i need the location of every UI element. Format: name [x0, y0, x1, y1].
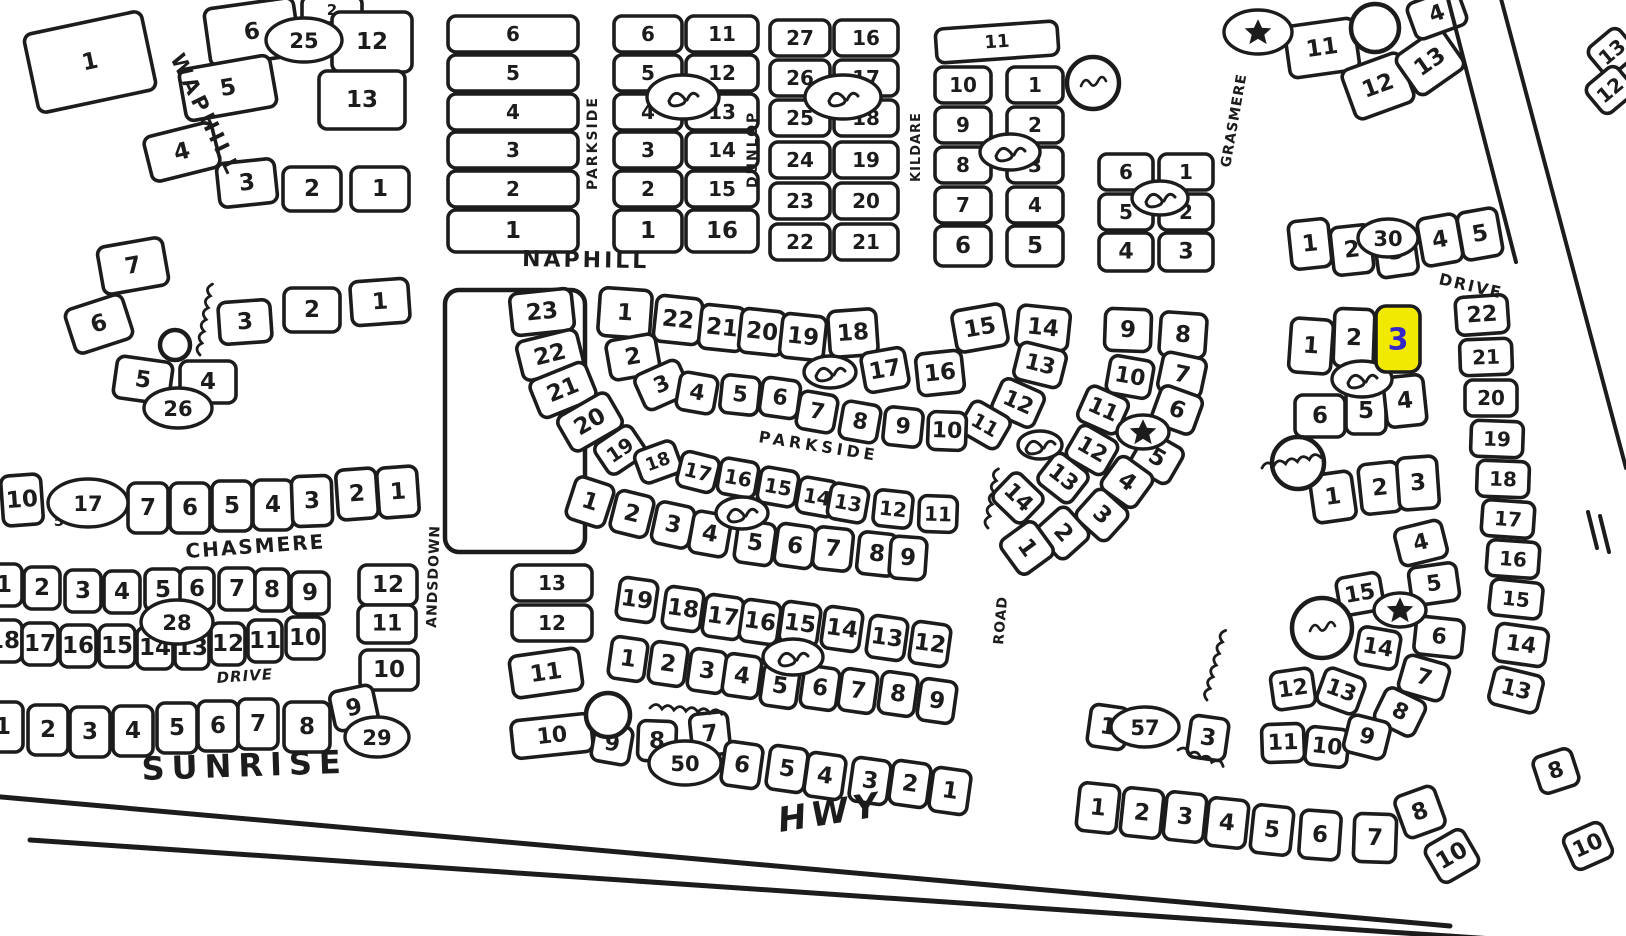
lot: 2: [888, 760, 932, 809]
lot: 13: [865, 615, 908, 662]
lot-number: 1: [371, 288, 389, 315]
lot-number: 16: [1498, 546, 1527, 572]
lot: 16: [716, 457, 760, 499]
lot-number: 4: [265, 492, 281, 518]
lot: 2: [28, 705, 68, 755]
lot: 3: [1159, 233, 1213, 271]
block-number: 30: [1373, 227, 1402, 251]
lot-number: 18: [836, 319, 870, 347]
lot: 4: [448, 94, 578, 130]
lot: 20: [1465, 380, 1517, 416]
lot-number: 5: [1027, 233, 1043, 259]
lot-number: 4: [506, 100, 520, 124]
lot: 6: [773, 523, 816, 570]
lot: 5: [1250, 804, 1295, 856]
lot-number: 16: [923, 358, 958, 387]
lot-number: 9: [956, 113, 970, 137]
lot-number: 15: [782, 609, 817, 639]
lot: 17: [675, 450, 721, 494]
lot: 16: [834, 20, 898, 56]
lot-number: 10: [931, 418, 962, 444]
lot: 12: [211, 623, 245, 665]
lot: 11: [935, 21, 1059, 63]
lot-number: 5: [169, 715, 185, 741]
block-number-marker: [1117, 415, 1169, 449]
lot-number: 15: [1501, 586, 1531, 613]
lot: 4: [1099, 233, 1153, 271]
lot: 19: [779, 313, 827, 361]
lot: 19: [1470, 420, 1523, 458]
lot-number: 2: [304, 297, 320, 323]
lot-number: 2: [1133, 799, 1152, 827]
street-label: NAPHILL: [522, 247, 650, 274]
block-number-marker: [1224, 10, 1292, 54]
lot: 6: [935, 226, 991, 266]
lot: 16: [738, 599, 781, 646]
lot: 7: [96, 237, 169, 296]
lot-number: 4: [200, 369, 216, 395]
lot: 18: [0, 620, 22, 662]
lot: 7: [935, 187, 991, 223]
lot: 10: [935, 67, 991, 103]
highlighted-lot: 3: [1376, 306, 1420, 372]
lot-number: 14: [708, 138, 736, 162]
lot: 5: [719, 374, 761, 416]
lot: 13: [512, 565, 592, 601]
lot: 2: [24, 567, 60, 609]
lot-number: 6: [641, 22, 655, 46]
lot: 6: [614, 16, 682, 52]
lot-number: 7: [250, 711, 266, 737]
lot-number: 4: [1396, 387, 1415, 415]
lot: 17: [1481, 499, 1535, 539]
block-number-marker: [1018, 431, 1062, 459]
lot-number: 5: [1119, 200, 1133, 224]
lot-number: 9: [894, 414, 912, 440]
lot: 15: [1488, 578, 1543, 619]
lot: 9: [1104, 308, 1151, 352]
lot: 22: [653, 295, 704, 346]
block-number-marker: [980, 134, 1040, 170]
block-number-marker: [647, 75, 719, 119]
lot: 1: [0, 564, 22, 606]
lot-number: 1: [1028, 73, 1042, 97]
lot-number: 9: [302, 580, 318, 606]
lot: 9: [889, 536, 928, 580]
lot: 1: [350, 278, 411, 326]
block-number: 29: [362, 726, 391, 750]
lot: 11: [918, 495, 957, 532]
lot-number: 16: [722, 464, 754, 492]
lot-number: 23: [525, 297, 560, 326]
lot-number: 10: [1113, 362, 1148, 392]
lot: 7: [795, 390, 839, 434]
lot-number: 15: [101, 633, 133, 659]
lot-number: 7: [956, 193, 970, 217]
lot: 5: [157, 703, 197, 753]
lot: 24: [770, 142, 830, 178]
lot: 1: [1007, 67, 1063, 103]
cul-de-sac-bulb: [1292, 598, 1352, 658]
lot: 18: [827, 308, 878, 357]
lot-number: 13: [538, 571, 566, 595]
lot: 7: [812, 526, 854, 572]
lot-number: 11: [1304, 33, 1339, 63]
lot-number: 1: [1089, 794, 1108, 822]
lot-number: 19: [852, 148, 880, 172]
lot: 2: [448, 171, 578, 207]
lot: 1: [928, 767, 972, 816]
lot-number: 6: [1119, 160, 1133, 184]
lot-number: 3: [304, 488, 321, 515]
lot: 21: [834, 224, 898, 260]
street-label: PARKSIDE: [585, 96, 601, 190]
lot-number: 3: [641, 138, 655, 162]
lot-number: 16: [62, 633, 94, 659]
lot: 3: [1186, 715, 1229, 762]
lot: 1: [376, 466, 419, 519]
lot: 12: [359, 565, 417, 605]
lot: 3: [218, 299, 273, 345]
lot-number: 12: [1276, 674, 1310, 703]
lot: 6: [720, 741, 764, 790]
lot: 3: [291, 475, 333, 526]
lot-number: 3: [236, 308, 254, 335]
lot-number: 19: [1483, 427, 1512, 452]
lot-number: 21: [852, 230, 880, 254]
lot: 9: [916, 678, 957, 725]
lot-number: 5: [1263, 816, 1282, 844]
lot: 6: [170, 483, 210, 533]
lot-number: 12: [708, 61, 736, 85]
lot-number: 17: [705, 602, 740, 632]
lot-number: 4: [114, 579, 130, 605]
lot: 14: [820, 606, 863, 653]
lot-number: 10: [949, 73, 977, 97]
lot: 4: [104, 571, 140, 613]
lot-number: 8: [956, 153, 970, 177]
lot-number: 3: [1409, 469, 1427, 496]
block-number-marker: 50: [649, 741, 721, 785]
block-number-marker: [804, 356, 856, 388]
lot-number: 19: [619, 585, 654, 615]
street-label: DUNLOP: [745, 111, 761, 188]
lot: 6: [1295, 395, 1345, 437]
lot-number: 2: [304, 176, 320, 202]
lot: 12: [332, 12, 412, 72]
lot-number: 3: [506, 138, 520, 162]
block-number-marker: [763, 639, 823, 675]
block-number-marker: [1132, 181, 1188, 215]
lot-number: 11: [249, 628, 281, 654]
lot: 19: [834, 142, 898, 178]
lot-number: 9: [899, 544, 917, 571]
lot: 7: [1353, 813, 1397, 862]
lot: 15: [951, 303, 1010, 353]
lot: 10: [360, 650, 418, 690]
lot-number: 2: [1346, 325, 1363, 352]
lot: 11: [248, 620, 282, 662]
lot-number: 17: [867, 354, 903, 385]
lot-number: 13: [346, 87, 378, 113]
block-number: 50: [670, 752, 699, 776]
lot-number: 4: [1028, 193, 1042, 217]
lot: 11: [508, 647, 583, 698]
lot-number: 7: [824, 535, 843, 563]
lot: 3: [1163, 791, 1208, 843]
lot: 7: [837, 668, 878, 715]
block-number-marker: 29: [345, 717, 409, 757]
lot-number: 1: [0, 572, 12, 598]
lot-number: 15: [708, 177, 736, 201]
block-number: 25: [289, 29, 318, 53]
lot: 10: [927, 411, 966, 450]
lot-number: 23: [786, 189, 814, 213]
lot-number: 27: [786, 26, 814, 50]
lot: 12: [908, 621, 951, 668]
lot: 3: [614, 132, 682, 168]
lot-number: 22: [786, 230, 814, 254]
lot-number: 19: [786, 322, 821, 351]
lot: 2: [614, 171, 682, 207]
plat-map: 2161251343217654321654321611512413314215…: [0, 0, 1626, 936]
lot-number: 20: [745, 317, 780, 346]
lot: 4: [1205, 797, 1250, 849]
block-number-marker: 25: [266, 18, 342, 62]
lot-number: 1: [640, 218, 656, 244]
block-number-marker: [805, 75, 881, 119]
lot: 5: [1456, 207, 1504, 261]
lot: 17: [22, 623, 58, 665]
lot-number: 3: [82, 719, 98, 745]
cul-de-sac-bulb: [1067, 57, 1119, 109]
lot: 7: [128, 483, 168, 533]
lot-number: 12: [372, 572, 404, 598]
cul-de-sac-bulb: [1351, 4, 1399, 52]
lot-number: 2: [1028, 113, 1042, 137]
lot: 9: [882, 406, 924, 448]
lot-number: 6: [210, 713, 226, 739]
lot-number: 2: [641, 177, 655, 201]
lot-number: 21: [1472, 345, 1501, 370]
lot-number: 16: [742, 607, 777, 637]
lot-number: 10: [535, 722, 568, 750]
lot: 4: [113, 706, 153, 756]
block-number: 17: [73, 492, 102, 516]
lot: 6: [448, 16, 578, 52]
lot: 4: [721, 653, 762, 700]
lot: 2: [608, 489, 655, 539]
lot: 5: [212, 481, 252, 531]
lot-number: 1: [372, 176, 388, 202]
street-label: KILDARE: [909, 112, 924, 182]
lot-number: 1: [1179, 160, 1193, 184]
lot-number: 1: [389, 478, 407, 505]
lot: 2: [284, 288, 340, 332]
block-number: 26: [163, 397, 192, 421]
lot: 5: [765, 745, 809, 794]
lot-number: 11: [528, 658, 563, 688]
lot: 16: [686, 210, 758, 252]
lot: 20: [834, 183, 898, 219]
lot-number: 17: [1493, 506, 1522, 532]
lot: 7: [238, 699, 278, 749]
lot-number: 4: [125, 718, 141, 744]
map-canvas: 2161251343217654321654321611512413314215…: [0, 0, 1626, 936]
lot-number: 2: [1371, 474, 1390, 502]
lot: 5: [1007, 226, 1063, 266]
street-label: SUNRISE: [141, 743, 348, 788]
lot-number: 1: [616, 299, 634, 326]
lot-number: 1: [1302, 332, 1320, 359]
lot: 21: [1459, 338, 1512, 376]
lot-number: 16: [852, 26, 880, 50]
lot-number: 24: [786, 148, 814, 172]
lot: 12: [1270, 667, 1317, 710]
lot: 14: [1354, 626, 1402, 671]
lot-number: 1: [0, 714, 11, 740]
lot: 4: [675, 371, 719, 415]
lot: 9: [1342, 713, 1392, 760]
lot: 6: [198, 701, 238, 751]
lot-number: 11: [984, 31, 1010, 54]
block-number-marker: 26: [144, 388, 212, 428]
lot-number: 3: [238, 169, 257, 197]
lot: 22: [770, 224, 830, 260]
lot: 2: [647, 641, 688, 688]
lot-number: 20: [852, 189, 880, 213]
lot: 11: [1261, 723, 1304, 762]
lot: 13: [319, 71, 405, 129]
lot-number: 12: [212, 631, 244, 657]
lot-number: 7: [140, 495, 156, 521]
lot-number: 1: [505, 218, 521, 244]
lot-number: 14: [824, 614, 859, 644]
block-number-marker: 17: [48, 479, 128, 527]
lot: 16: [915, 350, 965, 397]
lot: 4: [253, 480, 293, 530]
lot-number: 6: [955, 233, 971, 259]
lot: 8: [255, 569, 289, 611]
lot: 27: [770, 20, 830, 56]
lot-number: 3: [75, 578, 91, 604]
lot-number: 6: [1312, 403, 1328, 429]
lot: 8: [838, 400, 882, 444]
lot: 1: [597, 287, 652, 339]
lot-number: 2: [40, 717, 56, 743]
lot-number: 5: [641, 61, 655, 85]
lot-number: 7: [1367, 825, 1384, 852]
lot-number: 8: [1174, 321, 1192, 348]
lot-number: 4: [1118, 240, 1133, 265]
highlighted-lot-number: 3: [1388, 323, 1409, 358]
lot-number: 10: [5, 486, 39, 514]
lot-number: 20: [1477, 386, 1505, 410]
lot: 10: [286, 617, 324, 659]
lot-number: 22: [1466, 301, 1498, 328]
lot: 14: [1493, 623, 1550, 668]
lot: 3: [70, 707, 110, 757]
lot-number: 9: [1120, 317, 1137, 344]
lot-number: 11: [1267, 730, 1298, 756]
lot: 22: [1455, 294, 1510, 336]
lot-number: 18: [1489, 467, 1518, 492]
lot: 16: [1486, 539, 1540, 579]
lot-number: 12: [878, 496, 908, 523]
cul-de-sac-bulb: [160, 330, 190, 360]
lot-number: 11: [372, 612, 403, 637]
lot-number: 11: [708, 22, 736, 46]
lot-number: 15: [1343, 579, 1378, 609]
lot-number: 5: [731, 382, 749, 408]
lot: 11: [358, 605, 416, 643]
lot-number: 5: [506, 61, 520, 85]
lot-number: 16: [706, 218, 738, 244]
lot: 1: [448, 210, 578, 252]
lot: 11: [686, 16, 758, 52]
lot: 8: [1159, 311, 1208, 358]
lot-number: 14: [1026, 313, 1061, 342]
lot: 2: [335, 468, 378, 521]
lot: 3: [1396, 456, 1440, 511]
lot: 12: [512, 605, 592, 641]
lot-number: 13: [832, 489, 864, 517]
lot-number: 11: [924, 502, 953, 527]
block-number-marker: 57: [1111, 707, 1179, 747]
lot: 10: [510, 713, 594, 759]
block-number-marker: [1374, 593, 1426, 627]
lot: 6: [1298, 810, 1341, 861]
lot: 1: [614, 210, 682, 252]
block-number-marker: [716, 497, 768, 529]
lot: 9: [935, 107, 991, 143]
lot: 1: [351, 167, 409, 211]
lot-number: 7: [229, 576, 245, 602]
lot: 1: [1288, 218, 1333, 270]
block-number-marker: 30: [1358, 219, 1418, 257]
lot-number: 6: [189, 576, 205, 602]
lot: 1: [0, 702, 23, 752]
lot-number: 14: [1361, 633, 1396, 663]
block-number: 28: [162, 611, 191, 635]
lot-number: 17: [24, 631, 56, 657]
lot: 10: [0, 474, 43, 527]
lot: 6: [759, 377, 802, 420]
lot: 7: [219, 568, 255, 610]
lot-number: 4: [1218, 809, 1237, 837]
lot: 8: [877, 671, 918, 718]
lot-number: 8: [868, 540, 887, 568]
lot-number: 10: [1310, 733, 1343, 761]
lot: 17: [860, 346, 910, 393]
lot-number: 2: [506, 177, 520, 201]
lot: 12: [872, 489, 914, 529]
lot-number: 1: [1301, 230, 1320, 258]
lot: 9: [291, 572, 329, 614]
cul-de-sac-bulb: [586, 693, 630, 737]
lot-number: 15: [762, 473, 794, 501]
lot: 2: [1120, 787, 1165, 839]
lot: 18: [661, 586, 704, 633]
lot-number: 18: [0, 628, 20, 654]
lot: 4: [1007, 187, 1063, 223]
lot-number: 3: [1178, 240, 1193, 265]
lot-number: 15: [962, 312, 998, 343]
lot: 2: [1333, 308, 1375, 367]
lot: 1: [607, 636, 648, 683]
lot-number: 8: [299, 714, 315, 740]
lot: 3: [65, 570, 101, 612]
